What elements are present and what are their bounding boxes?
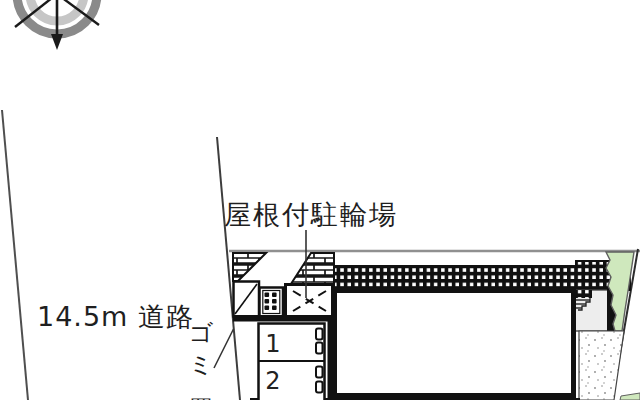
meter-box [260,288,284,317]
brick-wall-left [233,253,266,281]
canopy-grid [334,261,630,290]
label-road-width: 14.5m 道路 [37,299,194,335]
building-outline [335,291,574,396]
bicycle-parking-pad [286,285,333,318]
leader-line-garbage [214,329,234,368]
label-covered-bicycle-parking: 屋根付駐輪場 [224,197,398,233]
front-wall [233,315,334,322]
space-number-2: 2 [261,367,285,395]
space-number-1: 1 [261,330,285,358]
gravel-area [579,331,624,400]
compass-rose-icon [15,0,99,50]
dividing-wall [328,318,336,400]
label-garbage-area: ゴミ置場 [184,302,214,400]
site-plan-screen: 屋根付駐輪場 14.5m 道路 ゴミ置場 1 2 [0,0,640,400]
compass-south-arrowhead [51,34,63,50]
vegetation-corner [620,393,640,400]
garbage-storage-box [234,282,260,317]
brick-wall-right [289,253,334,287]
